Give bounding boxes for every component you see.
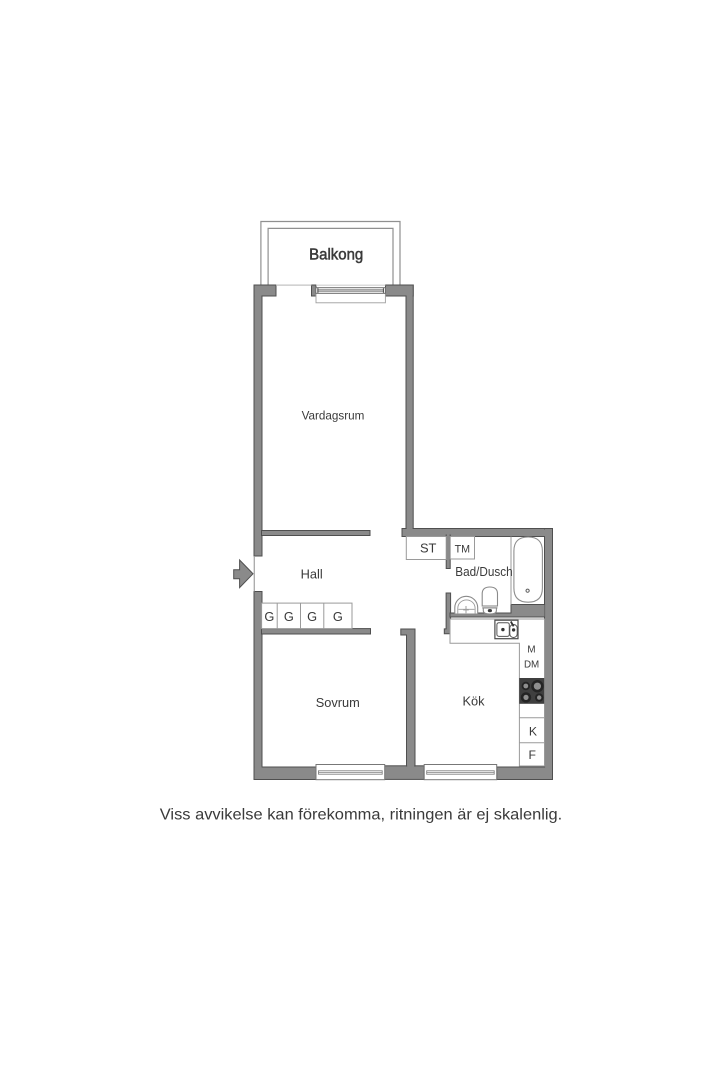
svg-text:K: K: [529, 724, 537, 738]
svg-text:Vardagsrum: Vardagsrum: [302, 409, 365, 423]
svg-text:Viss avvikelse kan förekomma,: Viss avvikelse kan förekomma, ritningen …: [160, 807, 563, 824]
svg-text:Hall: Hall: [301, 566, 323, 581]
svg-text:Bad/Dusch: Bad/Dusch: [455, 564, 512, 579]
svg-text:Sovrum: Sovrum: [316, 695, 360, 710]
svg-text:ST: ST: [420, 541, 437, 556]
svg-text:G: G: [307, 609, 317, 624]
svg-text:Kök: Kök: [462, 694, 485, 709]
svg-text:Balkong: Balkong: [309, 246, 363, 263]
svg-text:G: G: [264, 609, 274, 624]
svg-text:G: G: [333, 609, 343, 624]
svg-text:TM: TM: [455, 544, 471, 556]
svg-text:DM: DM: [524, 660, 539, 671]
svg-text:G: G: [284, 609, 294, 624]
svg-text:M: M: [527, 644, 535, 655]
svg-text:F: F: [528, 748, 535, 762]
